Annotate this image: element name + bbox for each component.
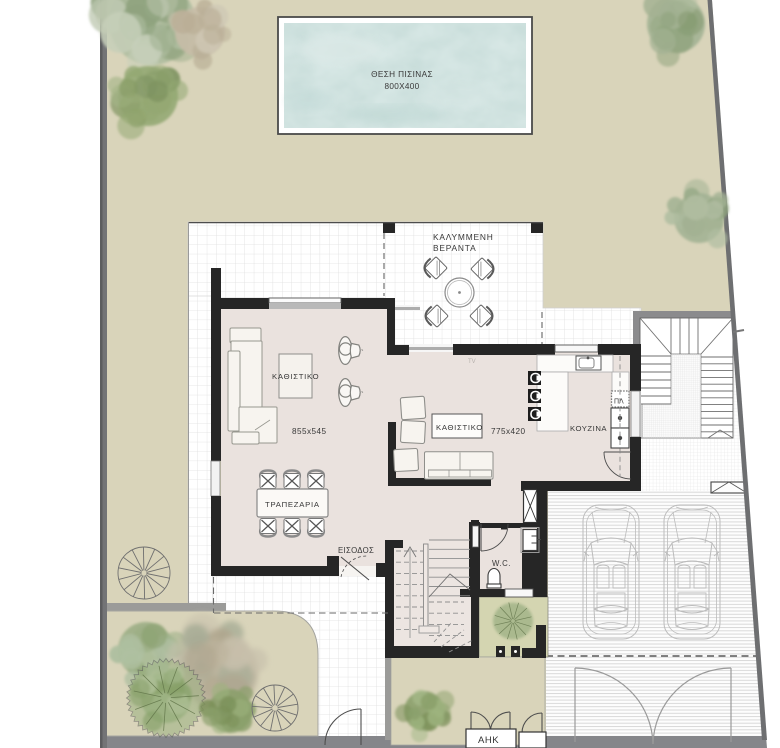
svg-text:ΑΗΚ: ΑΗΚ xyxy=(478,735,499,746)
svg-text:TV: TV xyxy=(468,359,476,365)
svg-text:ΕΙΣΟΔΟΣ: ΕΙΣΟΔΟΣ xyxy=(338,546,374,555)
svg-text:855x545: 855x545 xyxy=(292,427,327,436)
svg-text:ΤΡΑΠΕΖΑΡΙΑ: ΤΡΑΠΕΖΑΡΙΑ xyxy=(265,500,320,509)
svg-text:ΚΟΥΖΙΝΑ: ΚΟΥΖΙΝΑ xyxy=(570,424,607,433)
svg-text:ΘΕΣΗ ΠΙΣΙΝΑΣ: ΘΕΣΗ ΠΙΣΙΝΑΣ xyxy=(371,70,433,79)
svg-text:ΚΑΘΙΣΤΙΚΟ: ΚΑΘΙΣΤΙΚΟ xyxy=(272,372,319,381)
svg-text:ΚΑΘΙΣΤΙΚΟ: ΚΑΘΙΣΤΙΚΟ xyxy=(436,423,483,432)
svg-text:800Χ400: 800Χ400 xyxy=(385,82,420,91)
svg-text:W.C.: W.C. xyxy=(492,559,511,568)
svg-text:ΚΑΛΥΜΜΕΝΗ: ΚΑΛΥΜΜΕΝΗ xyxy=(433,232,494,242)
svg-text:ΠΛ: ΠΛ xyxy=(614,399,624,406)
svg-text:775x420: 775x420 xyxy=(491,427,526,436)
svg-text:ΒΕΡΑΝΤΑ: ΒΕΡΑΝΤΑ xyxy=(433,243,476,253)
